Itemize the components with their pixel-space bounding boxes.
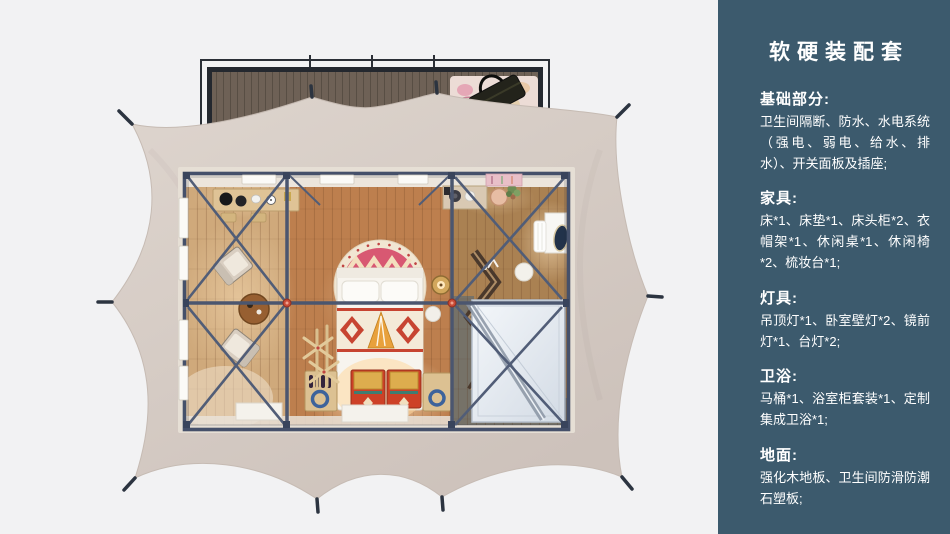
- spec-body: 马桶*1、浴室柜套装*1、定制集成卫浴*1;: [760, 389, 930, 431]
- spec-sidebar: 软硬装配套 基础部分: 卫生间隔断、防水、水电系统（强电、弱电、给水、排水）、开…: [718, 0, 950, 534]
- spec-body: 卫生间隔断、防水、水电系统（强电、弱电、给水、排水）、开关面板及插座;: [760, 112, 930, 174]
- hat: [220, 193, 233, 206]
- sidebar-title: 软硬装配套: [748, 36, 930, 66]
- spec-heading: 灯具:: [760, 287, 930, 308]
- spec-heading: 卫浴:: [760, 365, 930, 386]
- spec-section-flooring: 地面: 强化木地板、卫生间防滑防潮石塑板;: [760, 444, 930, 510]
- quilt-band: [337, 308, 423, 352]
- spec-heading: 家具:: [760, 187, 930, 208]
- dowry-chest-1: [351, 370, 385, 408]
- floor-mat: [342, 405, 408, 422]
- vanity-stool: [515, 263, 533, 281]
- porch-doorway: [486, 174, 522, 186]
- pillow: [381, 281, 418, 302]
- round-stool: [426, 307, 441, 322]
- spec-section-furniture: 家具: 床*1、床垫*1、床头柜*2、衣帽架*1、休闲桌*1、休闲椅*2、梳妆台…: [760, 187, 930, 273]
- spec-body: 床*1、床垫*1、床头柜*2、衣帽架*1、休闲桌*1、休闲椅*2、梳妆台*1;: [760, 211, 930, 273]
- spec-section-lighting: 灯具: 吊顶灯*1、卧室壁灯*2、镜前灯*1、台灯*2;: [760, 287, 930, 353]
- hat: [236, 196, 247, 207]
- spec-section-bathroom: 卫浴: 马桶*1、浴室柜套装*1、定制集成卫浴*1;: [760, 365, 930, 431]
- bedside-lamp-table: [432, 276, 450, 294]
- kettle: [252, 195, 261, 203]
- floorplan-render: [0, 0, 718, 534]
- spec-section-basics: 基础部分: 卫生间隔断、防水、水电系统（强电、弱电、给水、排水）、开关面板及插座…: [760, 88, 930, 174]
- slide: 软硬装配套 基础部分: 卫生间隔断、防水、水电系统（强电、弱电、给水、排水）、开…: [0, 0, 950, 534]
- rattan-chair: [491, 189, 508, 206]
- spec-heading: 地面:: [760, 444, 930, 465]
- wine-caddy-right: [423, 373, 451, 411]
- pillow: [342, 281, 379, 302]
- round-table: [239, 294, 269, 324]
- pleated-chair: [534, 221, 546, 252]
- spec-body: 强化木地板、卫生间防滑防潮石塑板;: [760, 468, 930, 510]
- spec-body: 吊顶灯*1、卧室壁灯*2、镜前灯*1、台灯*2;: [760, 311, 930, 353]
- dowry-chest-2: [387, 370, 421, 408]
- floorplan-area: [0, 0, 718, 534]
- spec-heading: 基础部分:: [760, 88, 930, 109]
